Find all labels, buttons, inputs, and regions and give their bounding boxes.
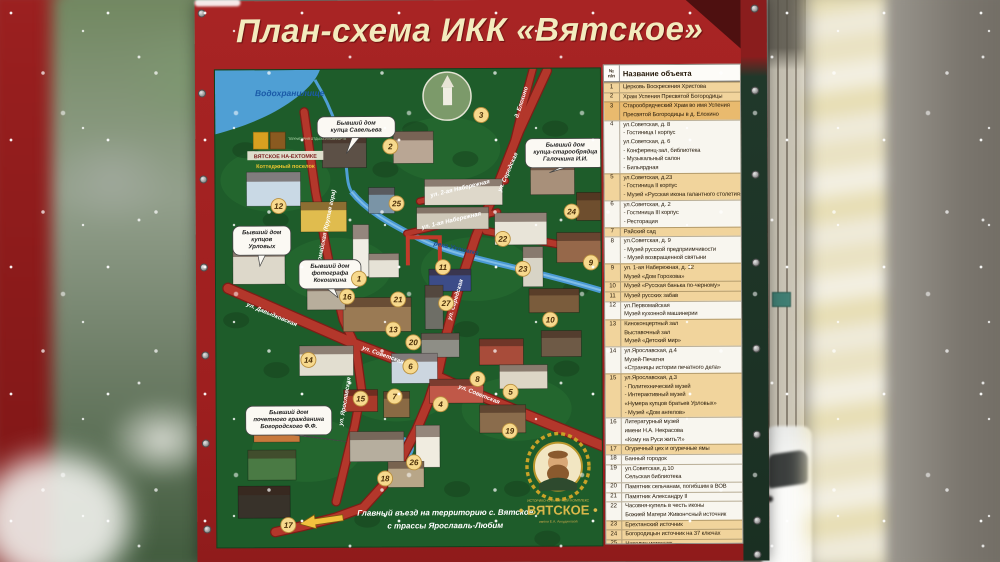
cottage-photo-thumb (270, 132, 285, 149)
map-marker-10: 10 (543, 312, 558, 327)
marker-number: 22 (497, 235, 507, 244)
legend-header: №п/п Название объекта (604, 65, 740, 83)
legend-entry-number: 22 (606, 502, 622, 519)
legend-entry: 23Ерехтанский источник (606, 519, 742, 529)
callout-text: Богородского Ф.Ф. (260, 424, 317, 430)
legend-entry: 20Памятник сельчанам, погибшим в ВОВ (606, 482, 742, 492)
frame-screw (199, 175, 207, 183)
frame-screw (200, 263, 208, 271)
church-silhouette (443, 87, 452, 105)
map-marker-3: 3 (474, 107, 489, 122)
legend-entry-number: 21 (606, 493, 622, 502)
marker-number: 13 (389, 325, 398, 334)
legend-entry-text: ул. 1-ая Набережная, д. 12Музей «Дом Гор… (621, 264, 741, 282)
map-marker-15: 15 (353, 391, 368, 406)
building-roof (479, 339, 523, 347)
legend-entry-number: 2 (604, 93, 620, 102)
frame-screw (198, 9, 206, 17)
tree-cluster (542, 121, 568, 137)
building-roof (246, 172, 300, 182)
background-street-sign (772, 292, 791, 307)
legend-entry: 21Памятник Александру II (606, 491, 742, 501)
building-roof (523, 247, 543, 258)
legend-panel: №п/п Название объекта 1Церковь Воскресен… (603, 64, 744, 545)
legend-entry-number: 19 (606, 465, 622, 482)
legend-entry-number: 10 (605, 283, 621, 292)
legend-entry-text: Музей русских забав (621, 292, 741, 301)
legend-entry-text: Киноконцертный залВыставочный залМузей «… (621, 320, 741, 347)
edge-screw (753, 517, 761, 525)
edge-screw (752, 345, 760, 353)
legend-entry-text: ул.Советская, д. 8- Гостиница I корпусул… (620, 120, 740, 173)
legend-entry: 17Огуречный цех и огуречные ямы (606, 444, 742, 454)
legend-entry-text: ул.Ярославская, д.3- Политехнический муз… (621, 374, 741, 418)
frame-screw (202, 439, 210, 447)
village-map: ВодохранилищеТЕРРИТОРИЯ ОТДЫХА И КОМФОРТ… (214, 67, 604, 548)
legend-entry-text: ул.Ярославская, д.4Музей-Печатня«Страниц… (621, 347, 741, 374)
legend-entry-text: Литературный музейимени Н.А. Некрасова«К… (622, 418, 742, 445)
legend-entry-text: ул.Советская, д.23- Гостиница II корпус-… (620, 173, 740, 200)
map-marker-17: 17 (281, 517, 296, 532)
marker-number: 27 (441, 299, 451, 308)
legend-entry-text: Памятник Александру II (622, 492, 742, 501)
legend-entry-text: Часовня-купель в честь иконыБожией Матер… (622, 502, 742, 520)
legend-entry: 12ул.ПервомайскаяМузей кухонной машинери… (605, 300, 741, 319)
legend-entry-number: 14 (605, 347, 621, 373)
legend-entry: 2Храм Успения Пресвятой Богородицы (604, 91, 740, 101)
edge-screw (751, 5, 759, 13)
legend-body: 1Церковь Воскресения Христова2Храм Успен… (604, 82, 743, 545)
legend-entry-number: 23 (606, 521, 622, 530)
legend-entry: 5ул.Советская, д.23- Гостиница II корпус… (604, 172, 740, 200)
marker-number: 26 (408, 458, 418, 467)
building-roof (495, 213, 547, 222)
callout-bubble: Бывший домкупца-старообрядцаГалочкина И.… (525, 138, 602, 172)
marker-number: 6 (408, 362, 413, 371)
legend-entry-number: 20 (606, 483, 622, 492)
marker-number: 8 (475, 375, 480, 384)
edge-screw (751, 171, 759, 179)
legend-entry-number: 15 (605, 374, 621, 417)
marker-number: 5 (508, 388, 513, 397)
frame-screw (203, 525, 211, 533)
callout-text: купца Савельева (331, 128, 383, 134)
tree-cluster (372, 161, 398, 177)
building-roof (425, 285, 443, 297)
marker-number: 3 (479, 111, 484, 120)
map-marker-7: 7 (387, 389, 402, 404)
map-marker-19: 19 (502, 423, 517, 438)
entrance-note: с трассы Ярославль-Любим (387, 521, 503, 531)
map-marker-6: 6 (403, 359, 418, 374)
map-marker-23: 23 (515, 261, 530, 276)
car-windshield (768, 449, 808, 489)
map-marker-20: 20 (406, 335, 421, 350)
background-blur-red-post (0, 0, 66, 562)
tree-cluster (553, 360, 579, 376)
marker-number: 4 (437, 400, 443, 409)
marker-number: 18 (381, 474, 390, 483)
legend-entry-number: 12 (605, 302, 621, 319)
legend-entry: 11Музей русских забав (605, 291, 741, 301)
marker-number: 20 (408, 338, 418, 347)
map-marker-2: 2 (383, 139, 398, 154)
callout-text: Галочкина И.И. (543, 156, 588, 162)
legend-entry: 6ул.Советская, д. 2- Гостиница III корпу… (605, 199, 741, 227)
frame-screw (198, 89, 206, 97)
map-marker-27: 27 (439, 296, 454, 311)
tree-cluster (444, 481, 470, 497)
building-roof (480, 405, 526, 413)
legend-entry: 14ул.Ярославская, д.4Музей-Печатня«Стран… (605, 346, 741, 374)
legend-entry: 19ул.Советская, д.10Сельская библиотека (606, 463, 742, 482)
legend-entry-text: Банный городок (622, 455, 742, 464)
legend-entry: 16Литературный музейимени Н.А. Некрасова… (606, 417, 742, 445)
legend-entry-text: Богородицын источник на 37 ключах (622, 530, 742, 539)
building-roof (238, 486, 290, 495)
map-marker-5: 5 (503, 384, 518, 399)
legend-entry-text: Памятник сельчанам, погибшим в ВОВ (622, 483, 742, 492)
marker-number: 14 (304, 356, 313, 365)
legend-entry: 10Музей «Русская банька по-черному» (605, 281, 741, 291)
legend-entry: 18Банный городок (606, 454, 742, 464)
legend-entry-number: 11 (605, 292, 621, 301)
legend-entry-text: Храм Успения Пресвятой Богородицы (620, 92, 740, 101)
marker-number: 2 (387, 142, 393, 151)
map-marker-21: 21 (391, 292, 406, 307)
legend-entry-text: Церковь Воскресения Христова (620, 83, 740, 92)
sign-title: План-схема ИКК «Вятское» (203, 10, 737, 51)
frame-screw (201, 351, 209, 359)
marker-number: 25 (391, 199, 401, 208)
sign-side-edge (741, 0, 770, 561)
marker-number: 19 (505, 427, 514, 436)
brand-sub-text: имени Е.А. Анкудиновой (539, 520, 578, 524)
legend-entry: 8ул.Советская, д. 9- Музей русской предп… (605, 236, 741, 264)
marker-number: 17 (284, 521, 293, 530)
entrance-note: Главный въезд на территорию с. Вятское (357, 508, 533, 518)
callout-text: Бывший дом (242, 229, 282, 236)
legend-entry-text: ул.ПервомайскаяМузей кухонной машинерии (621, 301, 741, 319)
marker-number: 15 (356, 394, 365, 403)
legend-entry-text: Райский сад (621, 227, 741, 236)
map-marker-25: 25 (389, 196, 404, 211)
legend-entry-number: 9 (605, 264, 621, 281)
photo-scene: План-схема ИКК «Вятское» ВодохранилищеТЕ… (0, 0, 1000, 562)
parked-car (762, 426, 812, 562)
marker-number: 21 (393, 295, 403, 304)
callout-text: Бывший дом (337, 120, 377, 127)
legend-entry: 9ул. 1-ая Набережная, д. 12Музей «Дом Го… (605, 263, 741, 282)
marker-number: 11 (439, 263, 448, 272)
legend-entry: 25Николин источник (606, 538, 742, 544)
map-marker-11: 11 (435, 260, 450, 275)
legend-entry: 3Старообрядческий Храм во имя УспенияПре… (604, 101, 740, 120)
legend-entry-number: 8 (605, 237, 621, 263)
legend-entry-number: 1 (604, 83, 620, 92)
legend-entry-number: 6 (605, 201, 621, 227)
legend-header-name: Название объекта (620, 65, 740, 82)
building-roof (248, 450, 296, 459)
map-marker-1: 1 (351, 271, 366, 286)
building-roof (353, 225, 369, 240)
legend-entry-number: 3 (604, 103, 620, 120)
building-roof (541, 330, 581, 337)
legend-entry-text: Огуречный цех и огуречные ямы (622, 445, 742, 454)
legend-entry-text: Николин источник (622, 539, 742, 544)
map-sign-board: План-схема ИКК «Вятское» ВодохранилищеТЕ… (195, 0, 770, 562)
callout-text: Бывший дом (310, 263, 350, 270)
building-roof (416, 425, 440, 437)
legend-entry-text: Ерехтанский источник (622, 520, 742, 529)
legend-entry-number: 7 (605, 228, 621, 237)
callout-text: Кокошкина (314, 278, 348, 284)
marker-number: 10 (546, 315, 555, 324)
marker-number: 1 (357, 274, 362, 283)
map-marker-24: 24 (564, 204, 579, 219)
building-roof (369, 187, 395, 194)
marker-number: 12 (274, 202, 283, 211)
legend-entry: 1Церковь Воскресения Христова (604, 82, 740, 92)
legend-entry-number: 17 (606, 446, 622, 455)
tree-cluster (223, 312, 249, 328)
map-marker-22: 22 (495, 231, 510, 246)
callout-text: Бывший дом (269, 409, 309, 416)
legend-header-number: №п/п (604, 65, 620, 81)
background-birch-trees (768, 0, 806, 562)
edge-screw (753, 551, 761, 559)
map-marker-4: 4 (433, 397, 448, 412)
legend-entry: 15ул.Ярославская, д.3- Политехнический м… (605, 373, 741, 418)
building-roof (301, 202, 347, 211)
building-roof (529, 288, 579, 295)
map-marker-13: 13 (386, 322, 401, 337)
building-roof (421, 333, 459, 340)
building-roof (557, 232, 601, 241)
map-marker-26: 26 (406, 455, 421, 470)
callout-text: Бывший дом (546, 141, 586, 148)
legend-entry-number: 4 (604, 121, 620, 173)
cottage-photo-thumb (253, 132, 268, 149)
marker-number: 7 (392, 392, 397, 401)
legend-entry: 7Райский сад (605, 226, 741, 236)
legend-entry-text: ул.Советская, д.10Сельская библиотека (622, 464, 742, 482)
edge-screw (752, 259, 760, 267)
callout-text: Урловых (248, 244, 276, 250)
marker-number: 23 (517, 265, 527, 274)
legend-entry-number: 13 (605, 320, 621, 346)
callout-text: фотографа (312, 270, 349, 277)
edge-screw (753, 431, 761, 439)
tree-cluster (504, 481, 530, 497)
legend-entry-text: ул.Советская, д. 2- Гостиница III корпус… (621, 200, 741, 227)
tree-cluster (263, 362, 289, 378)
background-blur-pole (888, 0, 1000, 562)
marker-number: 24 (566, 207, 576, 216)
background-snowbank (0, 455, 130, 562)
legend-entry-number: 5 (604, 174, 620, 200)
reservoir-label: Водохранилище (255, 88, 325, 98)
legend-entry: 24Богородицын источник на 37 ключах (606, 529, 742, 539)
building-roof (393, 131, 433, 140)
callout-text: купца-старообрядца (533, 148, 598, 155)
cottage-name: ВЯТСКОЕ НА-ЕХТОМКЕ (254, 154, 317, 160)
legend-entry: 13Киноконцертный залВыставочный залМузей… (605, 319, 741, 347)
legend-entry: 4ул.Советская, д. 8- Гостиница I корпусу… (604, 119, 740, 173)
cottage-subtitle: Коттеджный поселок (256, 163, 315, 170)
legend-entry-text: Старообрядческий Храм во имя УспенияПрес… (620, 102, 740, 120)
legend-entry-number: 25 (606, 540, 622, 544)
legend-entry-number: 18 (606, 455, 622, 464)
map-marker-9: 9 (583, 255, 598, 270)
tree-cluster (452, 151, 478, 167)
legend-entry-text: Музей «Русская банька по-черному» (621, 282, 741, 291)
legend-entry-text: ул.Советская, д. 9- Музей русской предпр… (621, 237, 741, 264)
map-marker-16: 16 (340, 289, 355, 304)
building-roof (350, 431, 404, 440)
background-blur-left (52, 0, 208, 562)
snow-on-frame (195, 0, 241, 7)
marker-number: 16 (343, 292, 352, 301)
marker-number: 9 (589, 258, 594, 267)
brand-name: • ВЯТСКОЕ • (519, 502, 598, 517)
legend-entry-number: 16 (606, 419, 622, 445)
background-blur-stripes (806, 0, 894, 562)
legend-entry: 22Часовня-купель в честь иконыБожией Мат… (606, 501, 742, 520)
callout-text: купцов (251, 237, 272, 243)
building-roof (577, 192, 603, 200)
map-marker-8: 8 (470, 371, 485, 386)
edge-screw (751, 87, 759, 95)
legend-entry-number: 24 (606, 530, 622, 539)
building-roof (499, 365, 547, 372)
map-marker-18: 18 (377, 471, 392, 486)
map-marker-12: 12 (271, 199, 286, 214)
callout-text: почетного гражданина (253, 417, 324, 423)
tree-cluster (534, 531, 560, 547)
map-marker-14: 14 (301, 352, 316, 367)
building-roof (369, 253, 399, 260)
